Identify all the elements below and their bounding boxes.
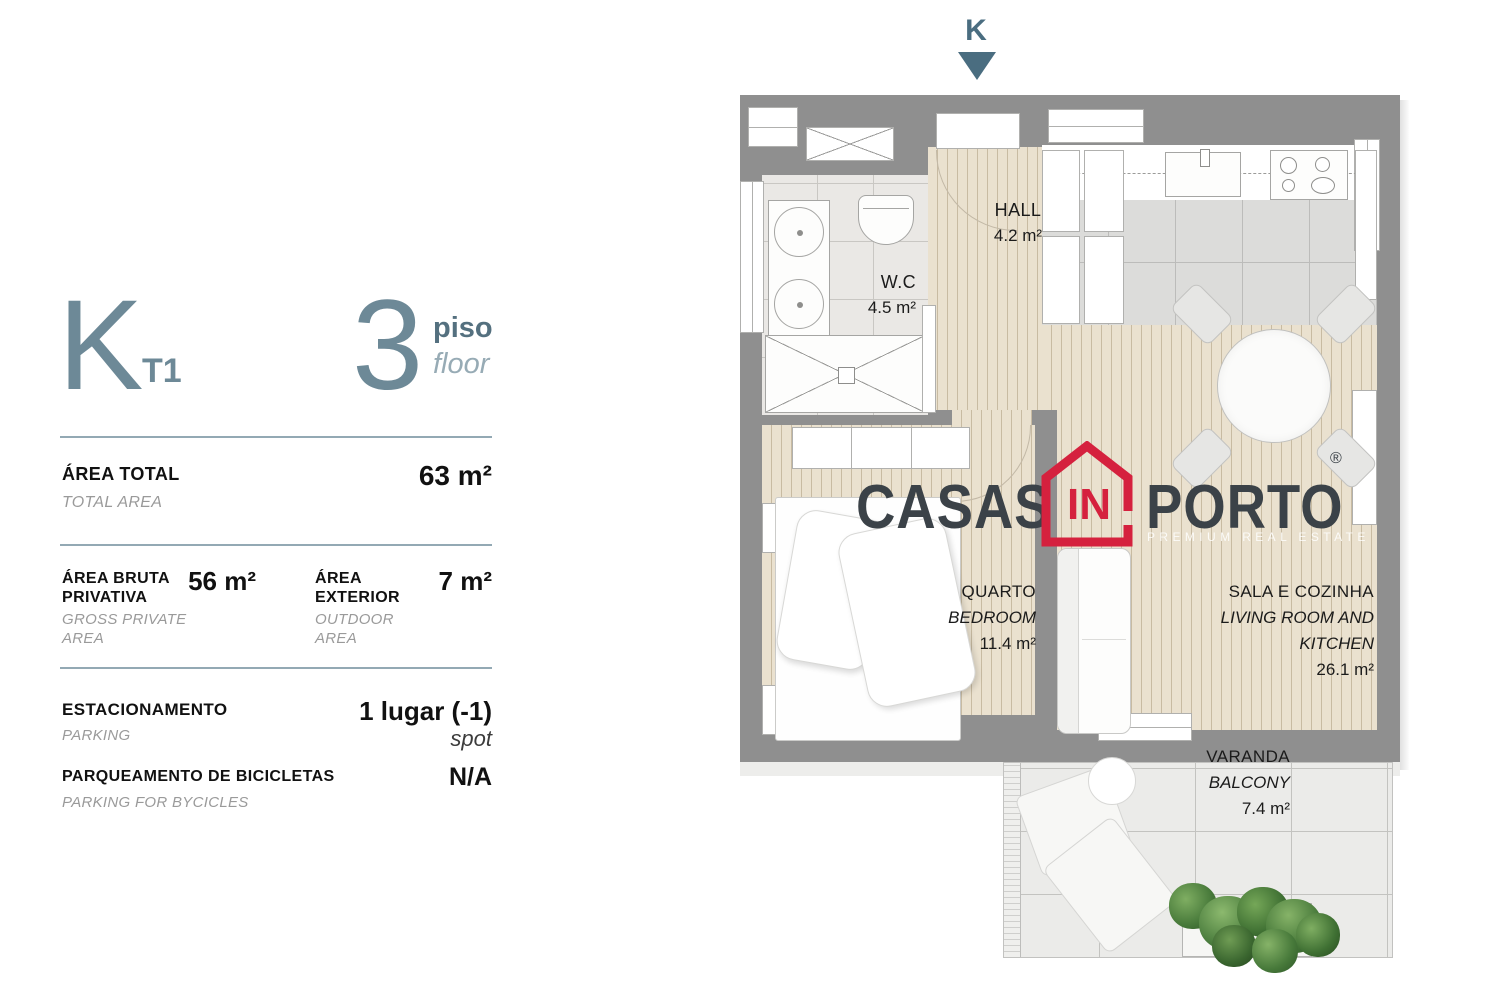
kitchen-cabinet <box>1042 236 1080 324</box>
wardrobe <box>792 427 970 469</box>
registered-mark: ® <box>1330 450 1342 468</box>
window <box>740 181 764 333</box>
wc-area: 4.5 m² <box>828 295 916 321</box>
shower <box>765 335 925 413</box>
outdoor-area-sublabel: OUTDOOR AREA <box>315 611 425 649</box>
plant <box>1296 913 1340 957</box>
divider-line <box>60 544 492 546</box>
hall-name: HALL <box>962 197 1074 223</box>
bike-parking-sublabel: PARKING FOR BYCICLES <box>62 794 249 813</box>
kitchen-sink <box>1165 152 1241 197</box>
bedroom-door-opening <box>952 410 1032 425</box>
gross-area-value: 56 m² <box>160 566 256 597</box>
area-total-value: 63 m² <box>332 460 492 492</box>
plant <box>1252 929 1298 973</box>
bathroom-door <box>922 305 936 413</box>
living-area: 26.1 m² <box>1142 657 1374 683</box>
divider-line <box>60 667 492 669</box>
hall-label: HALL 4.2 m² <box>962 197 1074 249</box>
floor-label-pt: piso <box>433 312 493 345</box>
brand-house-icon: IN <box>1036 441 1140 549</box>
living-name-en: LIVING ROOM AND KITCHEN <box>1142 605 1374 657</box>
area-total-label: ÁREA TOTAL <box>62 464 180 485</box>
balcony-name-pt: VARANDA <box>1128 744 1290 770</box>
stove <box>1270 150 1348 200</box>
balcony-name-en: BALCONY <box>1128 770 1290 796</box>
unit-typology: T1 <box>142 352 182 391</box>
floor-label-en: floor <box>433 348 489 381</box>
wc-name: W.C <box>828 269 916 295</box>
brochure-page: K T1 3 piso floor ÁREA TOTAL TOTAL AREA … <box>0 0 1500 996</box>
bike-parking-value: N/A <box>292 763 492 792</box>
plan-shadow <box>1400 100 1410 770</box>
counter-side <box>1355 150 1377 300</box>
kitchen-cabinet <box>1084 150 1124 232</box>
parking-value-sub: spot <box>292 726 492 752</box>
brand-word-casas: CASAS <box>856 472 1051 543</box>
dining-table <box>1217 329 1331 443</box>
living-label: SALA E COZINHA LIVING ROOM AND KITCHEN 2… <box>1142 579 1374 683</box>
parking-sublabel: PARKING <box>62 727 131 746</box>
balcony-label: VARANDA BALCONY 7.4 m² <box>1128 744 1290 822</box>
orientation-marker-letter: K <box>952 14 1000 48</box>
balcony-railing <box>1004 763 1021 957</box>
sink <box>774 279 824 329</box>
parking-value: 1 lugar (-1) <box>292 696 492 727</box>
window <box>748 107 798 147</box>
outdoor-area-value: 7 m² <box>397 566 492 597</box>
area-total-sublabel: TOTAL AREA <box>62 493 162 513</box>
plant <box>1212 925 1256 967</box>
gross-area-sublabel: GROSS PRIVATE AREA <box>62 611 222 649</box>
sink <box>774 207 824 257</box>
window <box>1048 109 1144 143</box>
floor-number: 3 <box>352 282 421 410</box>
sofa <box>1057 548 1131 734</box>
parking-label: ESTACIONAMENTO <box>62 700 228 720</box>
orientation-arrow-icon <box>958 52 996 80</box>
wc-label: W.C 4.5 m² <box>828 269 916 321</box>
kitchen-cabinet <box>1084 236 1124 324</box>
brand-tagline: PREMIUM REAL ESTATE <box>1147 530 1370 544</box>
divider-line <box>60 436 492 438</box>
bedroom-label: QUARTO BEDROOM 11.4 m² <box>884 579 1036 657</box>
bedroom-area: 11.4 m² <box>884 631 1036 657</box>
bedroom-name-pt: QUARTO <box>884 579 1036 605</box>
bedroom-name-en: BEDROOM <box>884 605 1036 631</box>
entrance-door <box>936 113 1020 149</box>
brand-word-in: IN <box>1067 480 1111 529</box>
hall-area: 4.2 m² <box>962 223 1074 249</box>
balcony-area-value: 7.4 m² <box>1128 796 1290 822</box>
unit-letter: K <box>58 282 141 410</box>
living-name-pt: SALA E COZINHA <box>1142 579 1374 605</box>
laundry-unit <box>806 127 894 161</box>
